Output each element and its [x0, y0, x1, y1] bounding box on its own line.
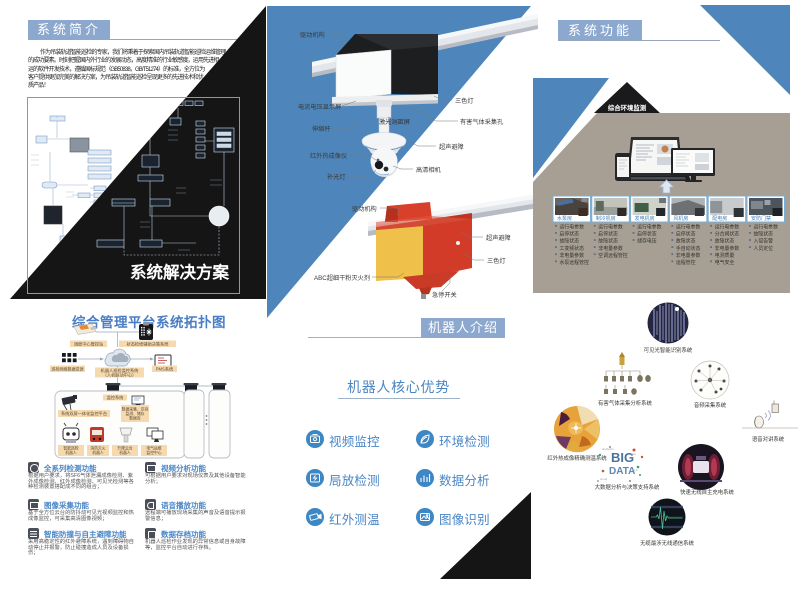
svg-text:分合闸状态: 分合闸状态 — [715, 231, 740, 238]
svg-text:data: data — [630, 452, 636, 456]
svg-text:升降云台: 升降云台 — [117, 446, 132, 451]
svg-text:三色灯: 三色灯 — [455, 97, 474, 105]
svg-text:运行电参数: 运行电参数 — [637, 224, 662, 231]
svg-text:cloud: cloud — [600, 477, 608, 481]
svg-text:快速无线自主充电系统: 快速无线自主充电系统 — [680, 488, 735, 496]
svg-text:无缆最涉无线通信系统: 无缆最涉无线通信系统 — [640, 539, 695, 547]
svg-text:三色灯: 三色灯 — [487, 257, 506, 265]
svg-text:监控系统: 监控系统 — [107, 394, 124, 401]
svg-text:工变频状态: 工变频状态 — [560, 245, 585, 252]
svg-text:web: web — [632, 468, 638, 472]
svg-text:巡检网络数据资源: 巡检网络数据资源 — [52, 366, 84, 372]
svg-text:运行电参数: 运行电参数 — [560, 224, 585, 231]
svg-text:智能巡检: 智能巡检 — [63, 446, 78, 451]
svg-text:监控中心: 监控中心 — [146, 450, 161, 455]
svg-text:手自动状态: 手自动状态 — [676, 245, 701, 252]
svg-text:故障状态: 故障状态 — [560, 238, 580, 245]
svg-text:驱动机构: 驱动机构 — [352, 205, 377, 213]
svg-text:运行电参数: 运行电参数 — [598, 224, 623, 231]
svg-text:有害气体采集分析系统: 有害气体采集分析系统 — [598, 399, 653, 407]
svg-text:补光灯: 补光灯 — [327, 173, 346, 181]
svg-text:水泵远程管控: 水泵远程管控 — [560, 259, 589, 266]
svg-text:运行电参数: 运行电参数 — [754, 224, 779, 231]
svg-text:PMS系统: PMS系统 — [156, 366, 173, 373]
svg-text:大数据分析与决策支持系统: 大数据分析与决策支持系统 — [595, 483, 660, 491]
svg-text:高清相机: 高清相机 — [416, 166, 442, 174]
svg-text:电气安全: 电气安全 — [715, 259, 735, 266]
svg-text:储存电压: 储存电压 — [637, 238, 657, 245]
svg-text:伸缩杆: 伸缩杆 — [312, 125, 331, 133]
svg-text:风机房: 风机房 — [673, 215, 688, 222]
svg-text:启停状态: 启停状态 — [676, 231, 696, 238]
svg-text:（人机联动中心）: （人机联动中心） — [103, 372, 137, 379]
svg-text:数据采集、识别: 数据采集、识别 — [122, 407, 149, 412]
svg-text:机器人: 机器人 — [119, 450, 131, 455]
svg-text:配电房: 配电房 — [712, 215, 727, 222]
svg-text:电气运维: 电气运维 — [146, 446, 161, 451]
svg-text:红外热成像仪: 红外热成像仪 — [310, 152, 347, 160]
svg-text:ABC超细干粉灭火剂: ABC超细干粉灭火剂 — [314, 274, 370, 282]
svg-text:超声避障: 超声避障 — [486, 234, 511, 242]
svg-text:音频采集系统: 音频采集系统 — [694, 401, 727, 409]
svg-text:水泵房: 水泵房 — [557, 215, 572, 222]
svg-text:故障状态: 故障状态 — [715, 238, 735, 245]
svg-text:启停状态: 启停状态 — [637, 231, 657, 238]
svg-text:非电量参数: 非电量参数 — [598, 245, 623, 252]
svg-text:入侵告警: 入侵告警 — [754, 238, 774, 245]
svg-text:启停状态: 启停状态 — [598, 231, 618, 238]
svg-text:系统双屏一体化监控平台: 系统双屏一体化监控平台 — [61, 410, 107, 417]
svg-text:机器人: 机器人 — [65, 450, 77, 455]
svg-text:非电量参数: 非电量参数 — [676, 252, 701, 259]
svg-text:制冷机房: 制冷机房 — [596, 215, 616, 222]
svg-text:运行电参数: 运行电参数 — [715, 224, 740, 231]
svg-text:空调远程管控: 空调远程管控 — [598, 252, 627, 259]
svg-text:电测质量: 电测质量 — [715, 252, 735, 259]
svg-text:发电机房: 发电机房 — [635, 215, 655, 222]
svg-text:故障状态: 故障状态 — [676, 238, 696, 245]
svg-text:驱动机构: 驱动机构 — [300, 31, 325, 39]
svg-text:调度中心管控站: 调度中心管控站 — [74, 341, 103, 348]
svg-text:analytics: analytics — [602, 447, 614, 451]
svg-text:启停状态: 启停状态 — [560, 231, 580, 238]
svg-text:超声避障: 超声避障 — [439, 143, 464, 151]
svg-text:非电量参数: 非电量参数 — [560, 252, 585, 259]
svg-text:运程管控: 运程管控 — [676, 259, 696, 266]
svg-text:系统解决方案: 系统解决方案 — [130, 262, 230, 282]
svg-text:运行电参数: 运行电参数 — [676, 224, 701, 231]
svg-text:安防门禁: 安防门禁 — [751, 215, 771, 222]
svg-text:语音对讲系统: 语音对讲系统 — [752, 435, 785, 443]
svg-text:消防灭火: 消防灭火 — [90, 446, 105, 451]
svg-text:状态检修辅助决策系统: 状态检修辅助决策系统 — [127, 341, 169, 348]
svg-text:监测、储存: 监测、储存 — [126, 411, 145, 416]
svg-text:有害气体采集孔: 有害气体采集孔 — [460, 118, 503, 126]
svg-text:红外热成像精确测温系统: 红外热成像精确测温系统 — [547, 454, 607, 462]
svg-text:非电量参数: 非电量参数 — [715, 245, 740, 252]
svg-text:人员定位: 人员定位 — [754, 245, 774, 252]
svg-text:故障状态: 故障状态 — [754, 231, 774, 238]
svg-text:可见光智能识别系统: 可见光智能识别系统 — [644, 346, 693, 354]
svg-text:综合环境监测: 综合环境监测 — [608, 103, 647, 112]
svg-text:数据库: 数据库 — [129, 416, 141, 421]
svg-text:机器人: 机器人 — [92, 450, 104, 455]
svg-text:故障状态: 故障状态 — [598, 238, 618, 245]
svg-text:急停开关: 急停开关 — [432, 291, 457, 299]
svg-text:电流电压显示屏: 电流电压显示屏 — [298, 103, 341, 111]
